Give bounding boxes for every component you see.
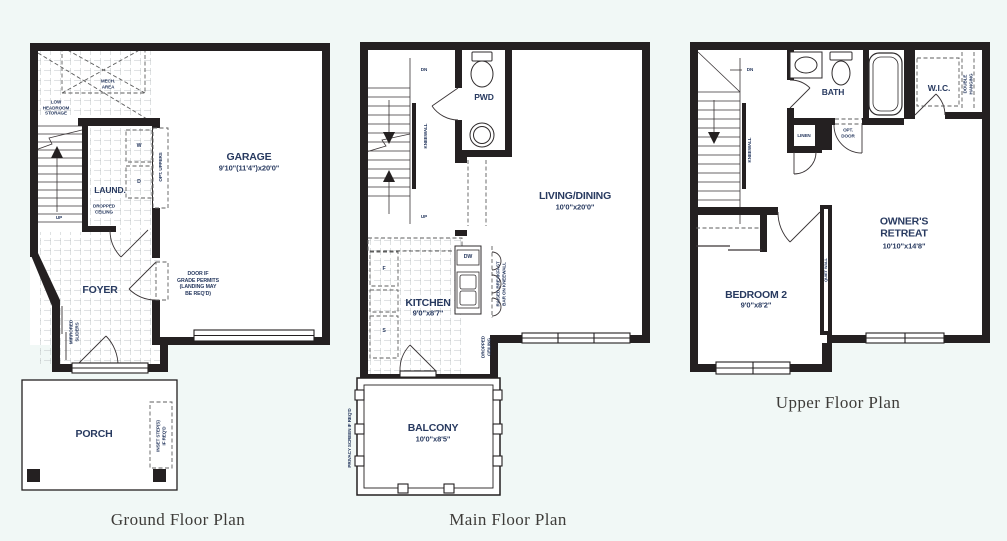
linen-label: LINEN [797, 133, 810, 139]
kitchen-room-label: KITCHEN [405, 297, 450, 309]
fridge-label: F [382, 266, 385, 273]
bedroom2-room-label: BEDROOM 2 [725, 289, 787, 301]
privacy-screen-label: PRIVACY SCREEN IF REQ'D [347, 408, 353, 467]
kitchen-dims-label: 9'0"x8'7" [413, 310, 444, 319]
kneewall-label: KNEEWALL [423, 124, 429, 149]
garage-room-label: GARAGE [227, 151, 272, 163]
opt-uppers-label: OPT. UPPERS [158, 152, 164, 181]
owners-retreat-dims-label: 10'10"x14'8" [883, 243, 926, 252]
garage-door [194, 330, 314, 341]
balcony-room-label: BALCONY [408, 422, 459, 434]
up-label: UP [421, 214, 427, 220]
front-door-sill [72, 363, 148, 373]
dishwasher-label: DW [464, 254, 472, 261]
vanity-sink-icon [790, 52, 822, 78]
mirrored-sliders-label: MIRRORED SLIDERS [68, 320, 79, 344]
breakfast-bar-label: RAISED BREAKFAST BAR ON KNEEWALL [495, 261, 506, 306]
dryer-label: D [137, 179, 141, 186]
bath-room-label: BATH [822, 87, 845, 97]
dn-label: DN [421, 67, 427, 73]
low-headroom-label: LOW HEADROOM STORAGE [43, 99, 70, 116]
up-label: UP [56, 215, 62, 221]
powder-room-label: PWD [474, 92, 494, 102]
inset-steps-label: INSET STEP(S) IF REQ'D [155, 420, 166, 452]
living-dining-room-label: LIVING/DINING [539, 190, 611, 202]
stove-label: S [382, 328, 385, 335]
grade-door-opening [156, 262, 168, 300]
toilet-icon [471, 52, 493, 87]
upper-floor-caption: Upper Floor Plan [776, 393, 900, 413]
foyer-room-label: FOYER [82, 284, 117, 296]
balcony-dims-label: 10'0"x8'5" [416, 436, 451, 445]
floor-plan-sheet: MECH. AREA LOW HEADROOM STORAGE GARAGE 9… [0, 0, 1007, 541]
main-floor-caption: Main Floor Plan [449, 510, 566, 530]
quiet-wall-label: QUIET WALL [824, 258, 828, 282]
kneewall-label: KNEEWALL [747, 138, 753, 163]
owners-windows [866, 333, 944, 343]
sink-icon [470, 123, 494, 147]
dropped-ceiling-label: DROPPED CEILING [93, 203, 115, 214]
owners-retreat-room-label: OWNER'S RETREAT [880, 216, 928, 241]
toilet-icon [830, 52, 852, 85]
double-hanging-label: DOUBLE HANGING [962, 65, 973, 104]
washer-label: W [137, 143, 142, 150]
dropped-ceiling-label: DROPPED CEILING [480, 336, 491, 358]
bedroom2-dims-label: 9'0"x8'2" [741, 302, 772, 311]
living-dining-dims-label: 10'0"x20'0" [556, 204, 595, 213]
bedroom2-windows [716, 362, 790, 374]
ground-floor-caption: Ground Floor Plan [111, 510, 245, 530]
kneewall-bar [742, 103, 746, 189]
grade-door-note-label: DOOR IF GRADE PERMITS (LANDING MAY BE RE… [177, 271, 219, 297]
garage-dims-label: 9'10"(11'4")x20'0" [219, 165, 280, 174]
bathtub-icon [869, 53, 902, 115]
opt-door-label: OPT. DOOR [841, 127, 854, 138]
living-windows [522, 333, 630, 343]
mech-area-label: MECH. AREA [101, 78, 115, 89]
laundry-room-label: LAUND. [94, 185, 126, 195]
porch-room-label: PORCH [76, 428, 113, 440]
wic-room-label: W.I.C. [928, 83, 951, 93]
kneewall-bar [412, 103, 416, 189]
dn-label: DN [747, 67, 753, 73]
